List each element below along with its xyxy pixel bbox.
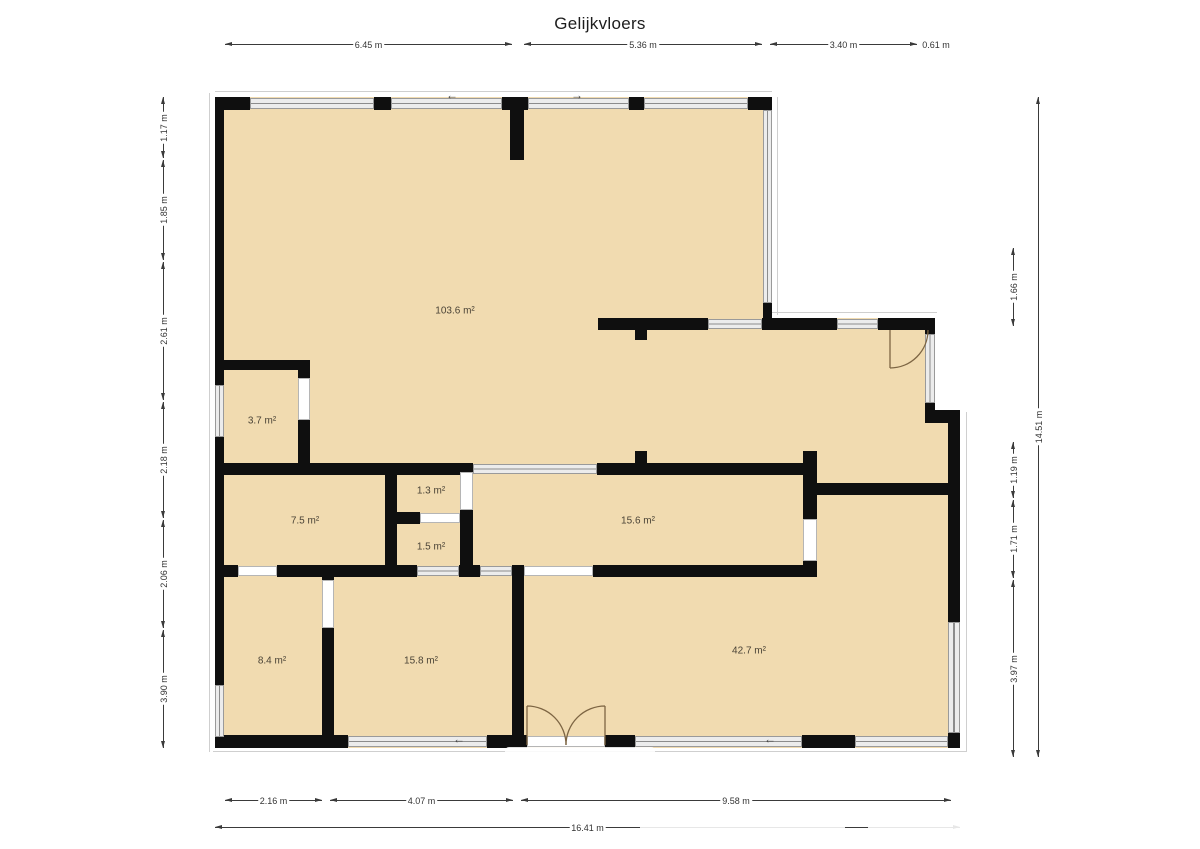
dimension-label: 3.97 m bbox=[1009, 653, 1019, 685]
dimension-arrowhead bbox=[1011, 580, 1015, 587]
wall bbox=[459, 565, 480, 577]
wall bbox=[948, 733, 960, 748]
room-area-label: 103.6 m² bbox=[435, 306, 474, 317]
dimension-label: 6.45 m bbox=[353, 40, 385, 50]
wall-sill-line bbox=[772, 312, 937, 313]
door-opening bbox=[298, 378, 310, 420]
dimension-arrowhead bbox=[506, 798, 513, 802]
slide-direction-arrow: ← bbox=[453, 732, 465, 746]
wall bbox=[298, 420, 310, 463]
dimension-label: 1.19 m bbox=[1009, 454, 1019, 486]
wall bbox=[277, 565, 417, 577]
wall-sill-line bbox=[777, 97, 778, 315]
dimension-arrowhead bbox=[215, 825, 222, 829]
window bbox=[480, 566, 512, 576]
window bbox=[708, 319, 762, 329]
wall bbox=[224, 735, 348, 748]
dimension-arrowhead bbox=[161, 402, 165, 409]
door-opening bbox=[524, 566, 593, 576]
floor-plan-page: Gelijkvloers 103.6 m²3.7 m²7.5 m²1.3 m²1… bbox=[0, 0, 1200, 849]
wall bbox=[635, 451, 647, 463]
wall bbox=[322, 565, 334, 580]
window bbox=[644, 98, 748, 109]
door-opening bbox=[803, 519, 817, 561]
wall-sill-line bbox=[215, 91, 772, 92]
window bbox=[855, 736, 948, 747]
door-opening bbox=[460, 472, 473, 510]
dimension-arrowhead bbox=[161, 393, 165, 400]
door-opening bbox=[238, 566, 277, 576]
wall bbox=[629, 97, 644, 110]
dimension-arrowhead bbox=[225, 798, 232, 802]
room-area-label: 1.5 m² bbox=[417, 542, 445, 553]
window bbox=[215, 385, 224, 437]
wall bbox=[298, 360, 310, 378]
dimension-arrowhead bbox=[161, 741, 165, 748]
dimension-arrowhead bbox=[161, 160, 165, 167]
dimension-arrowhead bbox=[315, 798, 322, 802]
dimension-arrowhead bbox=[161, 253, 165, 260]
watermark bbox=[600, 780, 712, 797]
dimension-label: 1.17 m bbox=[159, 112, 169, 144]
dimension-arrowhead bbox=[524, 42, 531, 46]
window bbox=[925, 334, 935, 403]
dimension-arrowhead bbox=[770, 42, 777, 46]
dimension-arrowhead bbox=[521, 798, 528, 802]
wall bbox=[224, 463, 473, 475]
floor-area bbox=[772, 318, 935, 748]
room-area-label: 3.7 m² bbox=[248, 416, 276, 427]
dimension-label: 1.66 m bbox=[1009, 271, 1019, 303]
dimension-arrowhead bbox=[161, 630, 165, 637]
dimension-arrowhead bbox=[161, 97, 165, 104]
wall bbox=[510, 110, 524, 160]
window bbox=[473, 464, 597, 474]
wall bbox=[748, 97, 772, 110]
window bbox=[250, 98, 374, 109]
dimension-arrowhead bbox=[161, 621, 165, 628]
dimension-label: 2.16 m bbox=[258, 796, 290, 806]
window bbox=[837, 319, 878, 329]
room-area-label: 15.6 m² bbox=[621, 516, 655, 527]
wall bbox=[385, 512, 420, 524]
slide-direction-arrow: → bbox=[571, 88, 583, 102]
window bbox=[215, 685, 224, 737]
dimension-arrowhead bbox=[505, 42, 512, 46]
dimension-label: 1.71 m bbox=[1009, 523, 1019, 555]
dimension-arrowhead bbox=[1011, 442, 1015, 449]
dimension-arrowhead bbox=[1011, 571, 1015, 578]
dimension-label: 14.51 m bbox=[1034, 409, 1044, 446]
dimension-label: 5.36 m bbox=[627, 40, 659, 50]
dimension-arrowhead bbox=[161, 262, 165, 269]
window bbox=[948, 622, 960, 733]
slide-direction-arrow: ← bbox=[446, 88, 458, 102]
dimension-arrowhead bbox=[161, 151, 165, 158]
dimension-label: 2.18 m bbox=[159, 444, 169, 476]
wall bbox=[948, 410, 960, 622]
wall bbox=[224, 565, 238, 577]
page-title: Gelijkvloers bbox=[0, 14, 1200, 34]
wall bbox=[925, 318, 935, 334]
dimension-label: 3.40 m bbox=[828, 40, 860, 50]
watermark bbox=[868, 820, 1048, 833]
room-area-label: 42.7 m² bbox=[732, 646, 766, 657]
door-opening bbox=[420, 513, 460, 523]
window bbox=[348, 736, 487, 747]
slide-direction-arrow: ← bbox=[764, 732, 776, 746]
wall bbox=[512, 565, 524, 748]
room-area-label: 8.4 m² bbox=[258, 656, 286, 667]
wall bbox=[598, 318, 708, 330]
dimension-arrowhead bbox=[225, 42, 232, 46]
wall bbox=[215, 437, 224, 685]
wall bbox=[817, 483, 952, 495]
watermark bbox=[788, 780, 940, 797]
dimension-label: 1.85 m bbox=[159, 194, 169, 226]
window bbox=[417, 566, 459, 576]
dimension-arrowhead bbox=[161, 511, 165, 518]
dimension-label: 16.41 m bbox=[569, 823, 606, 833]
wall bbox=[597, 463, 803, 475]
room-area-label: 1.3 m² bbox=[417, 486, 445, 497]
dimension-arrowhead bbox=[910, 42, 917, 46]
room-area-label: 7.5 m² bbox=[291, 516, 319, 527]
wall bbox=[215, 97, 224, 385]
wall bbox=[374, 97, 391, 110]
dimension-label: 9.58 m bbox=[720, 796, 752, 806]
watermark bbox=[640, 820, 845, 833]
door-opening bbox=[322, 580, 334, 628]
dimension-label: 2.61 m bbox=[159, 315, 169, 347]
dimension-arrowhead bbox=[161, 520, 165, 527]
wall bbox=[224, 360, 308, 370]
dimension-label: 3.90 m bbox=[159, 673, 169, 705]
dimension-arrowhead bbox=[330, 798, 337, 802]
wall bbox=[215, 737, 224, 748]
window bbox=[763, 110, 772, 303]
wall bbox=[593, 565, 817, 577]
wall bbox=[635, 330, 647, 340]
dimension-arrowhead bbox=[1011, 500, 1015, 507]
dimension-arrowhead bbox=[1011, 750, 1015, 757]
wall bbox=[502, 97, 528, 110]
wall bbox=[803, 451, 817, 519]
window bbox=[635, 736, 802, 747]
wall bbox=[878, 318, 932, 330]
dimension-label: 4.07 m bbox=[406, 796, 438, 806]
wall bbox=[763, 303, 772, 318]
dimension-label: 0.61 m bbox=[920, 40, 952, 50]
door-opening bbox=[527, 736, 605, 747]
dimension-arrowhead bbox=[1036, 750, 1040, 757]
wall-sill-line bbox=[209, 93, 210, 752]
watermark bbox=[505, 747, 655, 757]
dimension-label: 2.06 m bbox=[159, 558, 169, 590]
dimension-arrowhead bbox=[944, 798, 951, 802]
wall bbox=[460, 510, 473, 565]
room-area-label: 15.8 m² bbox=[404, 656, 438, 667]
dimension-arrowhead bbox=[1036, 97, 1040, 104]
wall bbox=[802, 735, 855, 748]
dimension-arrowhead bbox=[1011, 248, 1015, 255]
wall-sill-line bbox=[966, 412, 967, 752]
dimension-arrowhead bbox=[755, 42, 762, 46]
dimension-arrowhead bbox=[1011, 319, 1015, 326]
dimension-arrowhead bbox=[1011, 491, 1015, 498]
wall bbox=[762, 318, 837, 330]
wall bbox=[322, 628, 334, 748]
